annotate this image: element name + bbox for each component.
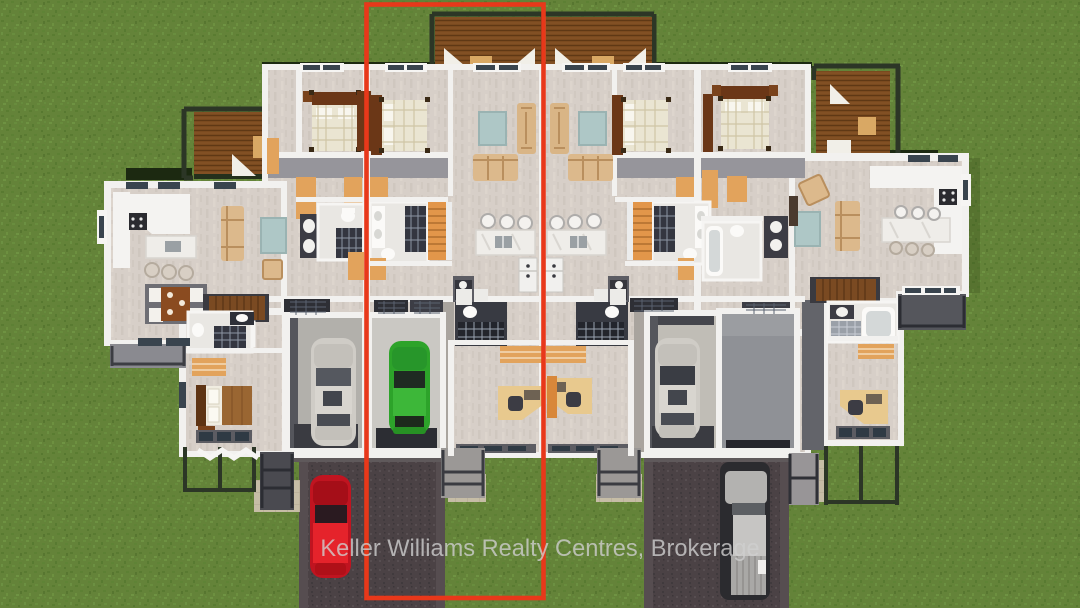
svg-text:Keller Williams Realty Centres: Keller Williams Realty Centres, Brokerag… (320, 536, 759, 562)
